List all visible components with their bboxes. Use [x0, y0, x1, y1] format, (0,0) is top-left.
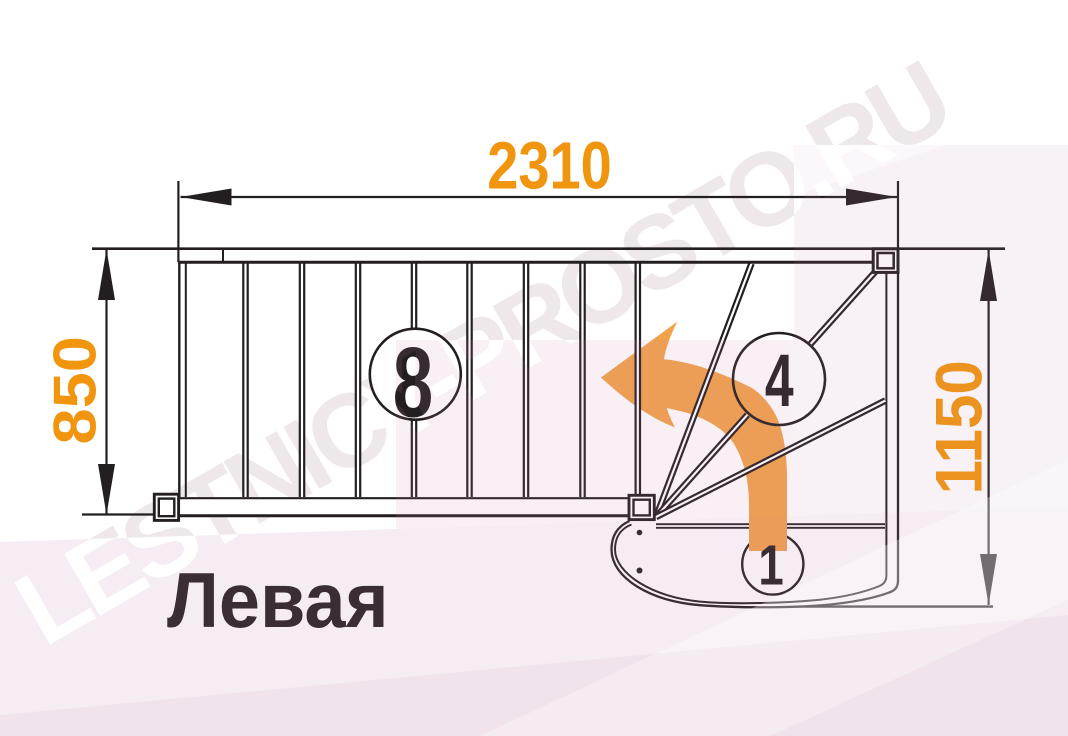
- svg-text:2310: 2310: [487, 129, 612, 204]
- svg-text:850: 850: [42, 336, 109, 444]
